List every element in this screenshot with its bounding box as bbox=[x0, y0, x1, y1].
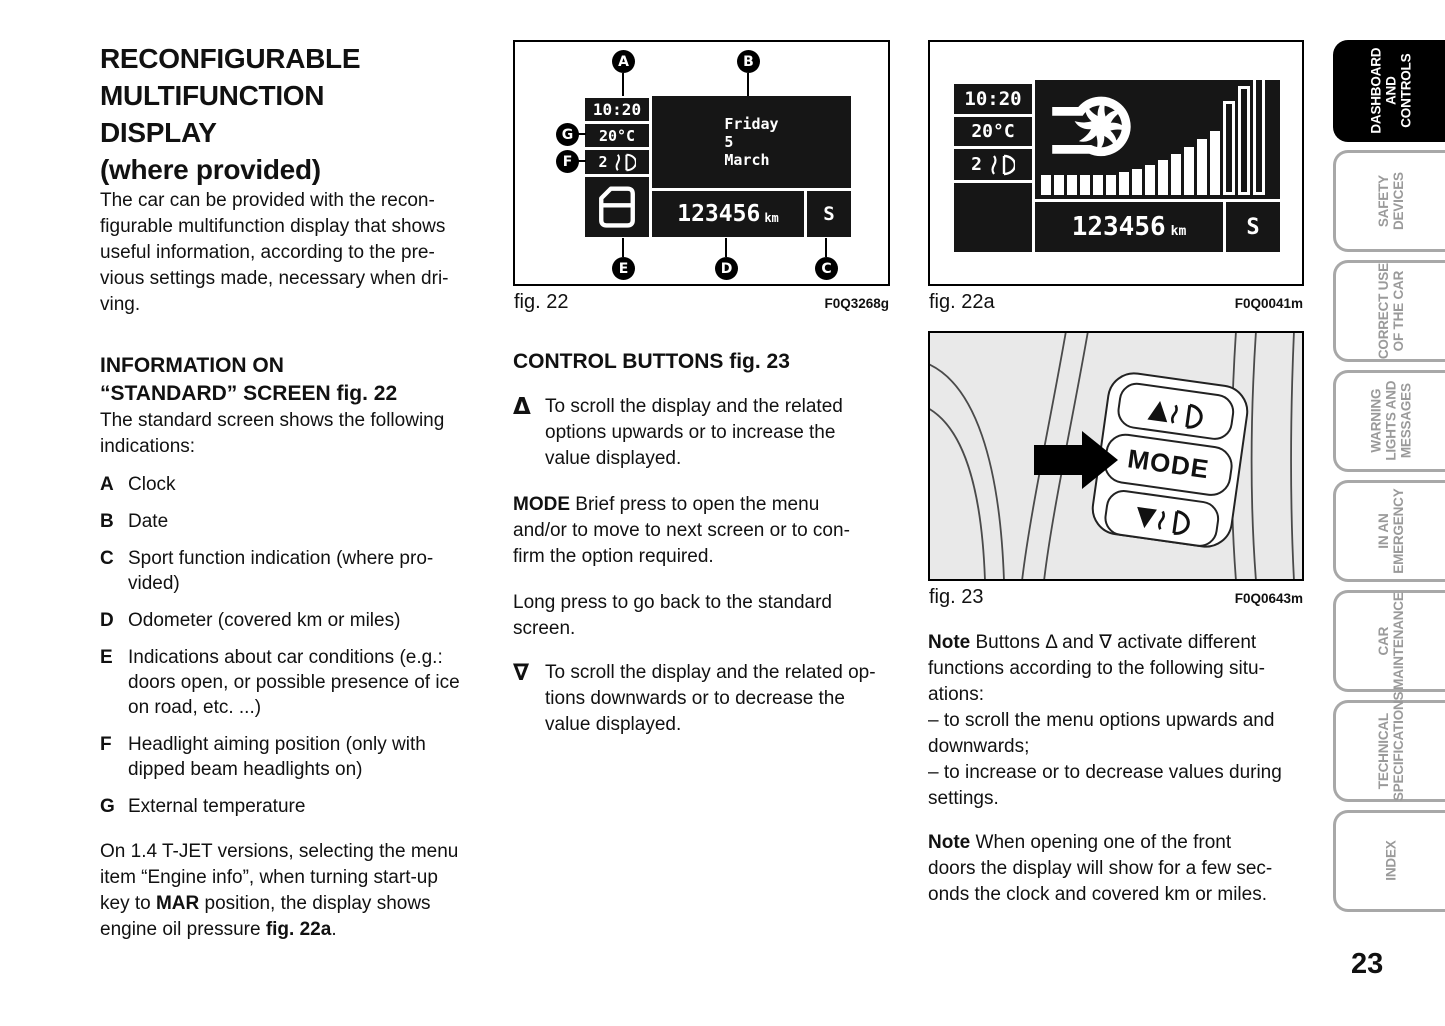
tab-inner: IN AN EMERGENCY bbox=[1336, 483, 1445, 579]
tab-warning-lights-and-messages[interactable]: WARNING LIGHTS AND MESSAGES bbox=[1333, 370, 1445, 472]
figure-23-box: MODE bbox=[928, 331, 1304, 581]
bar bbox=[1210, 131, 1220, 195]
headlight-beam-icon bbox=[985, 154, 1015, 176]
list-item: AClock bbox=[100, 472, 486, 497]
list-item: CSport function indication (where pro- v… bbox=[100, 546, 486, 596]
clock-cell: 10:20 bbox=[585, 98, 649, 121]
headlight-level-value: 2 bbox=[971, 154, 982, 175]
page-title: RECONFIGURABLE MULTIFUNCTION DISPLAY (wh… bbox=[100, 40, 486, 188]
tab-label: TECHNICAL SPECIFICATIONS bbox=[1375, 701, 1405, 801]
bar bbox=[1106, 175, 1116, 195]
tab-safety-devices[interactable]: SAFETY DEVICES bbox=[1333, 150, 1445, 252]
list-item-text: Odometer (covered km or miles) bbox=[128, 608, 400, 633]
callout-g: G bbox=[556, 123, 579, 146]
figure-22-box: 10:20 20°C 2 Friday 5 March 123456 km S bbox=[513, 40, 890, 286]
bar bbox=[1041, 175, 1051, 195]
callout-e: E bbox=[612, 257, 635, 280]
door-open-icon bbox=[596, 185, 638, 229]
callout-a: A bbox=[612, 50, 635, 73]
boost-bars bbox=[1041, 80, 1275, 195]
list-item-letter: B bbox=[100, 509, 128, 534]
tab-inner: INDEX bbox=[1336, 813, 1445, 909]
list-item-letter: A bbox=[100, 472, 128, 497]
list-item-letter: C bbox=[100, 546, 128, 596]
sport-cell: S bbox=[807, 191, 851, 237]
list-item: BDate bbox=[100, 509, 486, 534]
list-item-text: Headlight aiming position (only with dip… bbox=[128, 732, 426, 782]
list-item: DOdometer (covered km or miles) bbox=[100, 608, 486, 633]
section-heading-standard-screen: INFORMATION ON “STANDARD” SCREEN fig. 22 bbox=[100, 352, 486, 408]
list-item-letter: G bbox=[100, 794, 128, 819]
empty-cell bbox=[954, 183, 1032, 252]
text-line: When opening one of the front doors the … bbox=[928, 832, 1272, 905]
intro-paragraph: The car can be provided with the recon- … bbox=[100, 188, 486, 318]
text-line: and/or to move to next screen or to con-… bbox=[513, 520, 850, 567]
bar bbox=[1119, 172, 1129, 195]
list-item: FHeadlight aiming position (only with di… bbox=[100, 732, 486, 782]
tab-technical-specifications[interactable]: TECHNICAL SPECIFICATIONS bbox=[1333, 700, 1445, 802]
bar bbox=[1253, 74, 1265, 195]
headlight-level-cell: 2 bbox=[585, 150, 649, 174]
up-triangle-icon: Δ bbox=[513, 394, 545, 472]
list-item-letter: E bbox=[100, 645, 128, 720]
list-item-text: Clock bbox=[128, 472, 176, 497]
tjet-paragraph: On 1.4 T-JET versions, selecting the men… bbox=[100, 839, 486, 943]
tab-label: SAFETY DEVICES bbox=[1375, 151, 1405, 251]
figure-22a-box: 10:20 20°C 2 bbox=[928, 40, 1304, 286]
callout-line bbox=[578, 160, 586, 162]
callout-b: B bbox=[737, 50, 760, 73]
tab-index[interactable]: INDEX bbox=[1333, 810, 1445, 912]
bar bbox=[1132, 169, 1142, 195]
tab-inner: SAFETY DEVICES bbox=[1336, 153, 1445, 249]
figure-code: F0Q0041m bbox=[1235, 296, 1303, 311]
temperature-cell: 20°C bbox=[585, 124, 649, 147]
callout-line bbox=[825, 238, 827, 257]
list-item-letter: D bbox=[100, 608, 128, 633]
door-open-cell bbox=[585, 177, 649, 237]
callout-line bbox=[622, 238, 624, 257]
figure-label: fig. 22a bbox=[929, 291, 995, 314]
mar-keyword: MAR bbox=[156, 893, 199, 914]
bar bbox=[1238, 86, 1250, 195]
indication-list: AClock BDate CSport function indication … bbox=[100, 472, 486, 819]
list-item-text: Indications about car conditions (e.g.: … bbox=[128, 645, 460, 720]
tab-inner: DASHBOARD AND CONTROLS bbox=[1336, 43, 1445, 139]
temperature-cell: 20°C bbox=[954, 117, 1032, 146]
headlight-beam-icon bbox=[610, 153, 636, 172]
bar bbox=[1093, 175, 1103, 195]
bar bbox=[1054, 175, 1064, 195]
note-keyword: Note bbox=[928, 632, 970, 653]
note-keyword: Note bbox=[928, 832, 970, 853]
bar bbox=[1184, 147, 1194, 195]
figure-code: F0Q0643m bbox=[1235, 591, 1303, 606]
figure-label: fig. 23 bbox=[929, 586, 983, 609]
bar bbox=[1067, 175, 1077, 195]
tab-label: IN AN EMERGENCY bbox=[1375, 481, 1405, 581]
fig-22a-reference: fig. 22a bbox=[266, 919, 331, 940]
figure-label: fig. 22 bbox=[514, 291, 568, 314]
callout-d: D bbox=[715, 257, 738, 280]
list-item-letter: F bbox=[100, 732, 128, 782]
right-column: 10:20 20°C 2 bbox=[928, 40, 1304, 908]
text-line: Brief press to open the menu bbox=[570, 494, 819, 515]
standard-screen-paragraph: The standard screen shows the following … bbox=[100, 408, 486, 460]
callout-c: C bbox=[815, 257, 838, 280]
text-line: key to bbox=[100, 893, 156, 914]
down-button-description: ∇ To scroll the display and the related … bbox=[513, 660, 890, 738]
callout-line bbox=[725, 238, 727, 257]
figure-23: MODE fig. 23 F0Q0643m bbox=[928, 331, 1304, 609]
page-number: 23 bbox=[1351, 948, 1383, 981]
callout-line bbox=[747, 73, 749, 96]
tab-label: CORRECT USE OF THE CAR bbox=[1375, 261, 1405, 361]
bar bbox=[1158, 160, 1168, 195]
bullet-text: To scroll the display and the related op… bbox=[545, 394, 843, 472]
manual-page: RECONFIGURABLE MULTIFUNCTION DISPLAY (wh… bbox=[0, 0, 1445, 1026]
left-column: RECONFIGURABLE MULTIFUNCTION DISPLAY (wh… bbox=[100, 40, 486, 962]
mode-description: MODE Brief press to open the menu and/or… bbox=[513, 492, 890, 570]
figure-23-caption: fig. 23 F0Q0643m bbox=[929, 586, 1303, 609]
section-heading-control-buttons: CONTROL BUTTONS fig. 23 bbox=[513, 348, 890, 376]
figure-code: F0Q3268g bbox=[824, 296, 889, 311]
clock-cell: 10:20 bbox=[954, 84, 1032, 114]
bar bbox=[1171, 154, 1181, 195]
tab-car-maintenance[interactable]: CAR MAINTENANCE bbox=[1333, 590, 1445, 692]
tab-inner: CAR MAINTENANCE bbox=[1336, 593, 1445, 689]
chapter-tab-sidebar: DASHBOARD AND CONTROLS SAFETY DEVICES CO… bbox=[1333, 40, 1445, 912]
tab-inner: CORRECT USE OF THE CAR bbox=[1336, 263, 1445, 359]
bar bbox=[1080, 175, 1090, 195]
list-item-text: External temperature bbox=[128, 794, 305, 819]
list-item-text: Date bbox=[128, 509, 168, 534]
text-line: On 1.4 T-JET versions, selecting the men… bbox=[100, 841, 458, 862]
mode-keyword: MODE bbox=[513, 494, 570, 515]
odometer-value: 123456 bbox=[677, 201, 760, 227]
headlight-level-cell: 2 bbox=[954, 149, 1032, 180]
figure-22-caption: fig. 22 F0Q3268g bbox=[514, 291, 889, 314]
figure-22a: 10:20 20°C 2 bbox=[928, 40, 1304, 314]
list-item: GExternal temperature bbox=[100, 794, 486, 819]
text-line: Buttons Δ and ∇ activate different funct… bbox=[928, 632, 1265, 705]
tab-label: DASHBOARD AND CONTROLS bbox=[1368, 41, 1413, 141]
list-item-text: Sport function indication (where pro- vi… bbox=[128, 546, 433, 596]
lcd-display-engine-info: 10:20 20°C 2 bbox=[954, 80, 1280, 252]
odometer-unit: km bbox=[764, 211, 778, 225]
bar bbox=[1197, 139, 1207, 195]
lcd-display-standard: 10:20 20°C 2 Friday 5 March 123456 km S bbox=[585, 96, 851, 237]
figure-22a-caption: fig. 22a F0Q0041m bbox=[929, 291, 1303, 314]
dash-item-scroll: – to scroll the menu options upwards and… bbox=[928, 708, 1304, 760]
steering-wheel-buttons-illustration: MODE bbox=[930, 333, 1302, 579]
list-item: EIndications about car conditions (e.g.:… bbox=[100, 645, 486, 720]
text-line: . bbox=[331, 919, 336, 940]
sport-cell: S bbox=[1226, 202, 1280, 252]
bar bbox=[1145, 165, 1155, 195]
callout-f: F bbox=[556, 150, 579, 173]
headlight-level-value: 2 bbox=[598, 153, 607, 171]
tab-label: CAR MAINTENANCE bbox=[1375, 591, 1405, 691]
long-press-paragraph: Long press to go back to the standard sc… bbox=[513, 590, 890, 642]
tab-inner: TECHNICAL SPECIFICATIONS bbox=[1336, 703, 1445, 799]
text-line: engine oil pressure bbox=[100, 919, 266, 940]
callout-line bbox=[578, 133, 586, 135]
bar bbox=[1223, 101, 1235, 195]
date-cell: Friday 5 March bbox=[652, 96, 851, 188]
tab-inner: WARNING LIGHTS AND MESSAGES bbox=[1336, 373, 1445, 469]
tab-label: WARNING LIGHTS AND MESSAGES bbox=[1368, 371, 1413, 471]
boost-graph-cell bbox=[1035, 80, 1280, 199]
tab-label: INDEX bbox=[1383, 811, 1398, 911]
dash-item-values: – to increase or to decrease values duri… bbox=[928, 760, 1304, 812]
tab-in-an-emergency[interactable]: IN AN EMERGENCY bbox=[1333, 480, 1445, 582]
odometer-unit: km bbox=[1171, 224, 1187, 239]
callout-line bbox=[622, 73, 624, 96]
odometer-cell: 123456 km bbox=[1035, 202, 1223, 252]
figure-22: 10:20 20°C 2 Friday 5 March 123456 km S bbox=[513, 40, 890, 314]
text-line: position, the display shows bbox=[199, 893, 430, 914]
note-buttons-paragraph: Note Buttons Δ and ∇ activate different … bbox=[928, 630, 1304, 708]
down-triangle-icon: ∇ bbox=[513, 660, 545, 738]
note-doors-paragraph: Note When opening one of the front doors… bbox=[928, 830, 1304, 908]
up-button-description: Δ To scroll the display and the related … bbox=[513, 394, 890, 472]
odometer-value: 123456 bbox=[1072, 212, 1166, 242]
tab-correct-use-of-the-car[interactable]: CORRECT USE OF THE CAR bbox=[1333, 260, 1445, 362]
odometer-cell: 123456 km bbox=[652, 191, 804, 237]
bullet-text: To scroll the display and the related op… bbox=[545, 660, 876, 738]
middle-column: 10:20 20°C 2 Friday 5 March 123456 km S bbox=[513, 40, 890, 738]
tab-dashboard-and-controls[interactable]: DASHBOARD AND CONTROLS bbox=[1333, 40, 1445, 142]
text-line: item “Engine info”, when turning start-u… bbox=[100, 867, 438, 888]
